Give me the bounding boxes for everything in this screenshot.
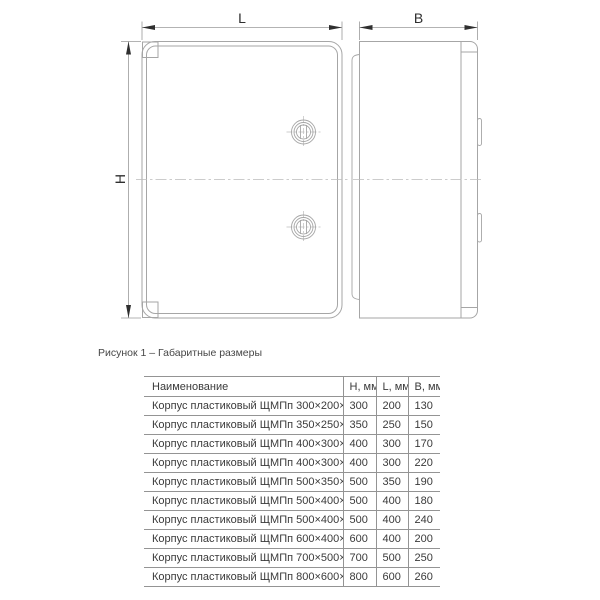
cell-name: Корпус пластиковый ЩМПп 400×300×220	[144, 454, 343, 473]
cell-l: 300	[376, 454, 408, 473]
cell-b: 250	[408, 549, 440, 568]
cell-h: 400	[343, 454, 376, 473]
cell-l: 400	[376, 492, 408, 511]
arrow-left-icon	[142, 25, 155, 30]
cell-name: Корпус пластиковый ЩМПп 500×350×190	[144, 473, 343, 492]
lock-upper	[287, 116, 321, 148]
hinge-bump-upper	[478, 119, 482, 146]
cell-b: 240	[408, 511, 440, 530]
cell-l: 200	[376, 397, 408, 416]
cell-b: 170	[408, 435, 440, 454]
dimension-width: B	[360, 10, 478, 40]
cell-name: Корпус пластиковый ЩМПп 500×400×180	[144, 492, 343, 511]
hinge-bump-lower	[478, 214, 482, 243]
table-row: Корпус пластиковый ЩМПп 350×250×150 350 …	[144, 416, 440, 435]
table-row: Корпус пластиковый ЩМПп 800×600×260 800 …	[144, 568, 440, 587]
front-view	[136, 42, 348, 319]
cell-l: 400	[376, 530, 408, 549]
table-header-row: Наименование H, мм L, мм B, мм	[144, 377, 440, 397]
header-l: L, мм	[376, 377, 408, 397]
dim-label-B: B	[414, 10, 423, 26]
figure-caption: Рисунок 1 – Габаритные размеры	[98, 347, 262, 359]
dim-label-H: H	[112, 174, 128, 184]
arrow-down-icon	[126, 305, 131, 318]
cell-name: Корпус пластиковый ЩМПп 800×600×260	[144, 568, 343, 587]
arrow-up-icon	[126, 42, 131, 55]
cell-l: 400	[376, 511, 408, 530]
cell-name: Корпус пластиковый ЩМПп 350×250×150	[144, 416, 343, 435]
table-row: Корпус пластиковый ЩМПп 500×400×240 500 …	[144, 511, 440, 530]
cell-h: 400	[343, 435, 376, 454]
cell-l: 500	[376, 549, 408, 568]
cell-h: 500	[343, 492, 376, 511]
cell-h: 350	[343, 416, 376, 435]
cell-name: Корпус пластиковый ЩМПп 700×500×250	[144, 549, 343, 568]
table-row: Корпус пластиковый ЩМПп 400×300×170 400 …	[144, 435, 440, 454]
table-row: Корпус пластиковый ЩМПп 500×350×190 500 …	[144, 473, 440, 492]
cell-name: Корпус пластиковый ЩМПп 600×400×200	[144, 530, 343, 549]
cell-b: 260	[408, 568, 440, 587]
arrow-right-icon	[465, 25, 478, 30]
cell-l: 300	[376, 435, 408, 454]
dimensions-table: Наименование H, мм L, мм B, мм Корпус пл…	[144, 376, 440, 587]
cell-name: Корпус пластиковый ЩМПп 500×400×240	[144, 511, 343, 530]
cell-b: 190	[408, 473, 440, 492]
cell-l: 350	[376, 473, 408, 492]
table-row: Корпус пластиковый ЩМПп 400×300×220 400 …	[144, 454, 440, 473]
cell-b: 130	[408, 397, 440, 416]
cell-b: 180	[408, 492, 440, 511]
dim-label-L: L	[238, 10, 246, 26]
cell-h: 500	[343, 511, 376, 530]
cell-h: 500	[343, 473, 376, 492]
header-b: B, мм	[408, 377, 440, 397]
hinge-cover-bottom	[143, 302, 159, 318]
back-flange-outline	[352, 55, 360, 300]
arrow-right-icon	[329, 25, 342, 30]
table-row: Корпус пластиковый ЩМПп 300×200×130 300 …	[144, 397, 440, 416]
arrow-left-icon	[360, 25, 373, 30]
hinge-cover-top	[143, 42, 159, 58]
dimension-length: L	[142, 10, 342, 40]
dimensional-drawing: L H B	[0, 0, 600, 370]
table-row: Корпус пластиковый ЩМПп 500×400×180 500 …	[144, 492, 440, 511]
table-row: Корпус пластиковый ЩМПп 700×500×250 700 …	[144, 549, 440, 568]
cell-h: 700	[343, 549, 376, 568]
side-view	[352, 42, 484, 319]
header-name: Наименование	[144, 377, 343, 397]
cell-b: 220	[408, 454, 440, 473]
cell-h: 300	[343, 397, 376, 416]
cell-h: 800	[343, 568, 376, 587]
cell-b: 150	[408, 416, 440, 435]
header-h: H, мм	[343, 377, 376, 397]
page: L H B	[0, 0, 600, 600]
cell-h: 600	[343, 530, 376, 549]
cell-l: 250	[376, 416, 408, 435]
cell-name: Корпус пластиковый ЩМПп 300×200×130	[144, 397, 343, 416]
cell-name: Корпус пластиковый ЩМПп 400×300×170	[144, 435, 343, 454]
lock-lower	[287, 211, 321, 243]
cell-b: 200	[408, 530, 440, 549]
table-row: Корпус пластиковый ЩМПп 600×400×200 600 …	[144, 530, 440, 549]
cell-l: 600	[376, 568, 408, 587]
